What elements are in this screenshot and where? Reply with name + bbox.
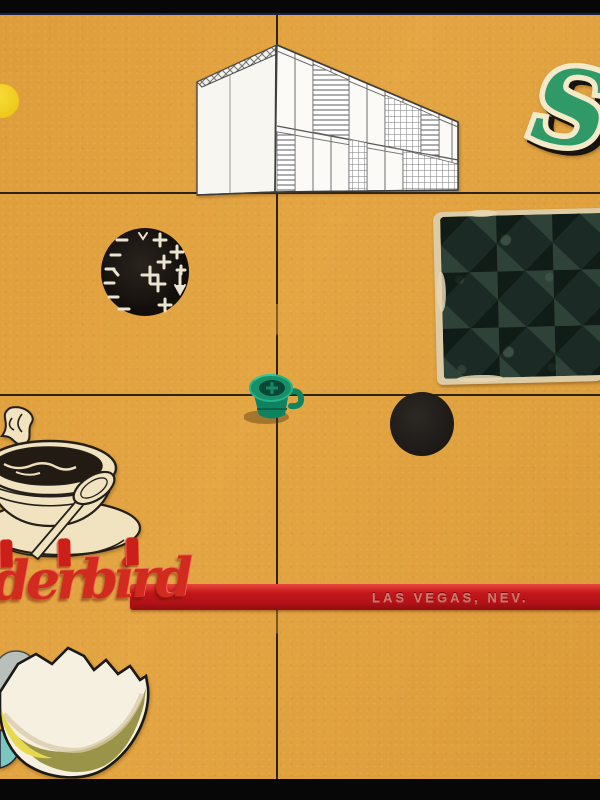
- eggshell-clipping-icon: [0, 630, 164, 786]
- collage-board: S S S: [0, 0, 600, 800]
- plastic-peg: [125, 537, 138, 565]
- green-script-letter-icon: S S S: [520, 46, 600, 164]
- swizzle-stick-embossed-text: LAS VEGAS, NEV.: [372, 590, 529, 605]
- swizzle-stick: LAS VEGAS, NEV.: [130, 584, 600, 610]
- black-stamp-with-crosses-icon: [97, 225, 193, 321]
- yellow-dot: [0, 84, 19, 118]
- modernist-house-line-drawing-icon: [190, 38, 470, 200]
- swizzle-script-text: derbird: [0, 545, 190, 612]
- black-dot: [390, 392, 454, 456]
- letter-fill: S: [525, 46, 600, 164]
- scan-border-top: [0, 0, 600, 15]
- swizzle-script-letters: derbird: [0, 542, 190, 615]
- card-scuff: [457, 374, 503, 382]
- plastic-peg: [57, 538, 70, 566]
- green-plastic-cup-icon: [244, 371, 306, 425]
- plastic-peg: [0, 539, 13, 567]
- card-pattern: [440, 213, 600, 379]
- scan-border-bottom: [0, 779, 600, 800]
- worn-dark-patterned-card: [433, 208, 600, 385]
